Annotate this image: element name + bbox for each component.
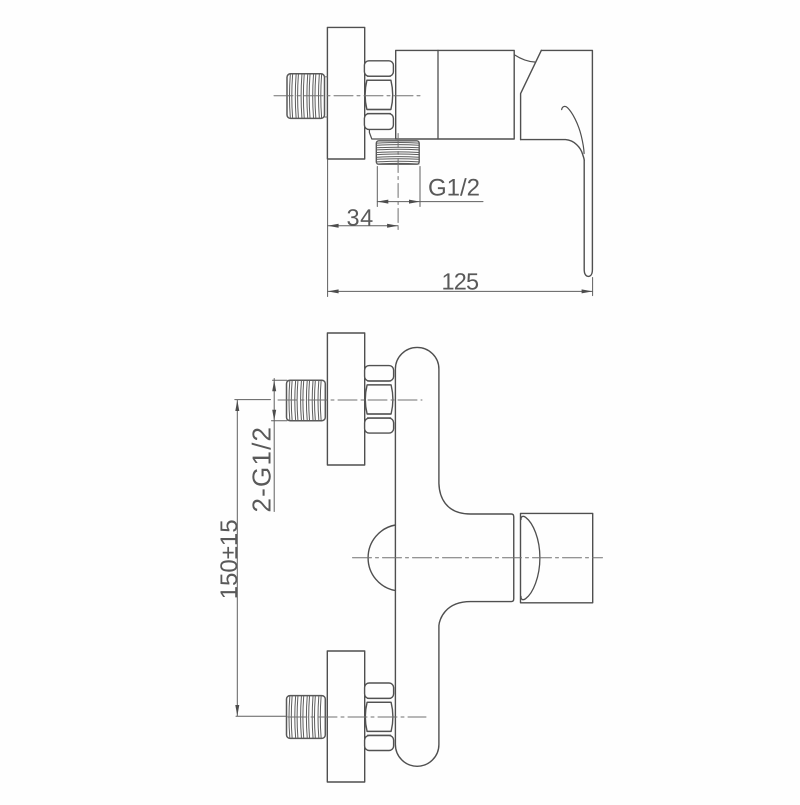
svg-text:125: 125 [442,268,480,294]
svg-text:150±15: 150±15 [216,519,243,599]
svg-text:34: 34 [347,204,374,230]
svg-text:G1/2: G1/2 [428,175,480,202]
svg-text:2-G1/2: 2-G1/2 [247,426,277,513]
